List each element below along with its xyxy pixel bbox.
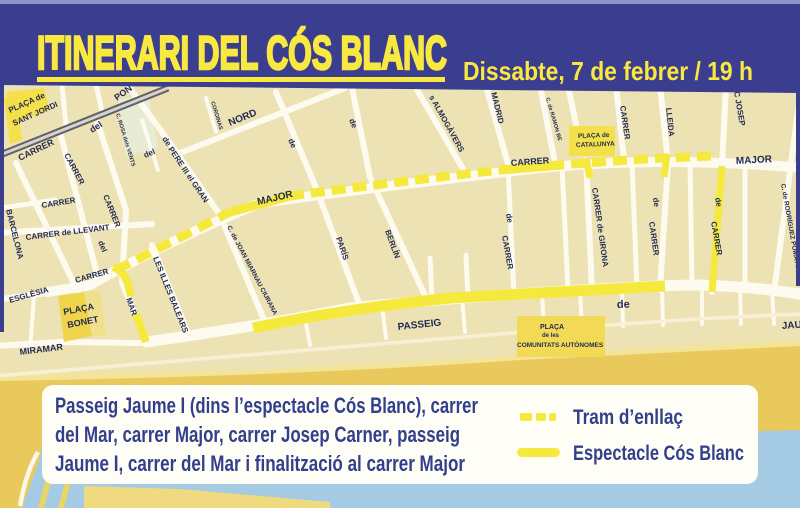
svg-text:Passeig Jaume I (dins l’espect: Passeig Jaume I (dins l’espectacle Cós B… [55, 393, 478, 418]
svg-text:Tram d’enllaç: Tram d’enllaç [573, 405, 683, 429]
svg-text:de les: de les [542, 333, 560, 339]
svg-text:MAJOR: MAJOR [736, 154, 773, 167]
svg-text:ITINERARI DEL CÓS BLANC: ITINERARI DEL CÓS BLANC [37, 26, 447, 79]
svg-text:PLAÇA: PLAÇA [540, 324, 564, 331]
svg-text:JAU: JAU [781, 320, 800, 332]
svg-text:del Mar, carrer Major, carrer: del Mar, carrer Major, carrer Josep Carn… [55, 422, 460, 447]
svg-text:COMUNITATS AUTÒNOMES: COMUNITATS AUTÒNOMES [517, 340, 604, 349]
svg-text:de: de [617, 299, 630, 311]
svg-text:Espectacle Cós Blanc: Espectacle Cós Blanc [573, 441, 744, 465]
svg-text:CATALUNYA: CATALUNYA [576, 141, 615, 149]
svg-text:Dissabte, 7 de febrer / 19 h: Dissabte, 7 de febrer / 19 h [463, 56, 753, 86]
svg-text:de: de [651, 197, 661, 208]
svg-text:Jaume I, carrer del Mar i fina: Jaume I, carrer del Mar i finalització a… [55, 451, 465, 476]
svg-text:PLAÇA de: PLAÇA de [578, 132, 610, 140]
